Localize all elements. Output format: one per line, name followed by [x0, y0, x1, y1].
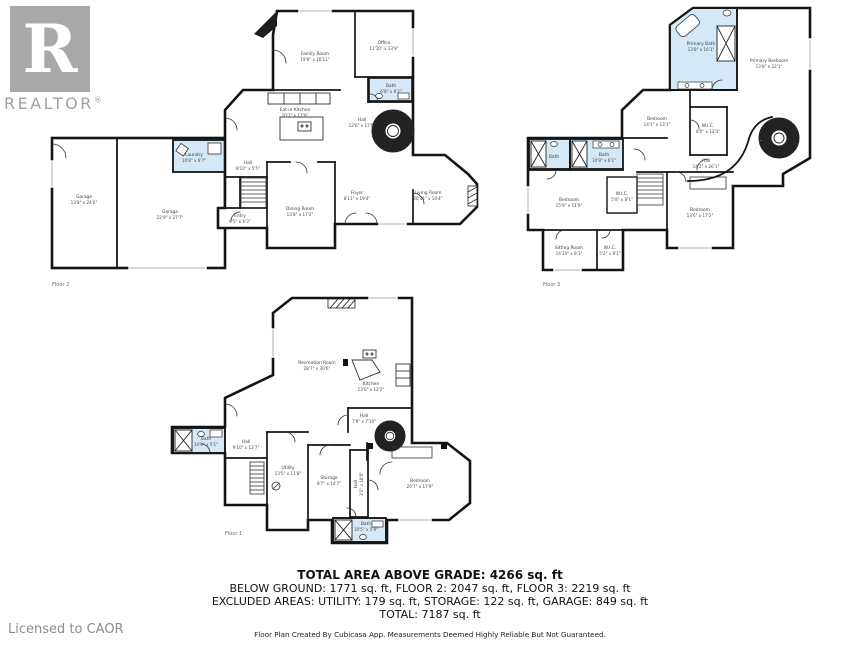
room-dims: 8'0" x 13'4" — [696, 129, 720, 134]
wall-post — [441, 443, 447, 449]
room-dims: 9'10" x 12'7" — [233, 445, 260, 450]
room-dims: 19'6" x 16'11" — [300, 57, 329, 62]
room-dims: 14'2" x 26'1" — [693, 164, 720, 169]
room-dims: 5'2" x 8'1" — [599, 251, 621, 256]
room-label: Bath — [549, 154, 559, 160]
room-dims: 13'5" x 11'8" — [275, 471, 302, 476]
room-dims: 14'10" x 8'1" — [556, 251, 583, 256]
room-dims: 20'7" x 17'9" — [407, 484, 434, 489]
washer-icon — [208, 143, 221, 154]
floor1-plan: Recreation Room 28'7" x 30'6" Kitchen 13… — [172, 298, 470, 543]
toilet-icon — [198, 431, 205, 436]
room-dims: 28'7" x 30'6" — [304, 366, 331, 371]
floor3-label: Floor 3 — [543, 282, 560, 288]
room-dims: 22'9" x 27'7" — [157, 215, 184, 220]
room-dims: 20'11" x 14'4" — [413, 196, 442, 201]
floorplan-document: R REALTOR® — [0, 0, 853, 646]
vanity-icon — [593, 141, 619, 148]
area-summary: TOTAL AREA ABOVE GRADE: 4266 sq. ft BELO… — [150, 568, 710, 639]
wall-post — [367, 443, 373, 449]
floor1-outline — [172, 298, 470, 543]
room-dims: 15'9" x 11'9" — [556, 203, 583, 208]
room-dims: 10'8" x 6'7" — [182, 158, 206, 163]
room-dims: 12'6" x 17'6" — [349, 123, 376, 128]
floorplans-canvas: Garage 13'8" x 24'6" Garage 22'9" x 27'7… — [0, 0, 853, 646]
floor1-label: Floor 1 — [225, 531, 242, 537]
room-dims: 8'7" x 14'7" — [317, 481, 341, 486]
room-dims: 14'1" x 13'1" — [644, 122, 671, 127]
room-dims: 10'9" x 6'1" — [592, 158, 616, 163]
room-dims: 3'1" x 10'0" — [359, 472, 364, 496]
room-dims: 6'8" x 8'2" — [380, 89, 402, 94]
bay-window-icon — [468, 186, 477, 206]
summary-title: TOTAL AREA ABOVE GRADE: 4266 sq. ft — [150, 568, 710, 582]
room-dims: 5'8" x 8'1" — [611, 197, 633, 202]
column — [343, 359, 348, 366]
floor2-outline — [218, 11, 477, 248]
shower-icon — [717, 26, 735, 61]
spiral-stairs-icon — [372, 110, 414, 152]
room-dims: 10'5" x 5'9" — [354, 527, 378, 532]
floor2-label: Floor 2 — [52, 282, 69, 288]
room-dims: 11'10" x 13'9" — [369, 46, 398, 51]
spiral-stairs-icon — [375, 421, 405, 451]
vanity-icon — [678, 82, 712, 89]
room-dims: 7'9" x 7'10" — [352, 419, 376, 424]
room-dims: 13'8" x 24'6" — [71, 200, 98, 205]
summary-disclaimer: Floor Plan Created By Cubicasa App. Meas… — [150, 630, 710, 639]
floor2-plan: Garage 13'8" x 24'6" Garage 22'9" x 27'7… — [52, 11, 477, 288]
room-dims: 10'8" x 5'1" — [194, 442, 218, 447]
room-dims: 13'0" x 12'2" — [358, 387, 385, 392]
license-text: Licensed to CAOR — [8, 622, 124, 637]
summary-line-excluded: EXCLUDED AREAS: UTILITY: 179 sq. ft, STO… — [150, 595, 710, 608]
room-dims: 13'8" x 16'1" — [688, 47, 715, 52]
window-well-icon — [328, 299, 355, 308]
room-dims: 8'10" x 5'5" — [236, 166, 260, 171]
sink-icon — [210, 430, 222, 437]
summary-line-floors: BELOW GROUND: 1771 sq. ft, FLOOR 2: 2047… — [150, 582, 710, 595]
room-dims: 8'11" x 19'4" — [344, 196, 371, 201]
room-dims: 13'8" x 17'2" — [287, 212, 314, 217]
toilet-icon — [551, 141, 558, 146]
room-dims: 6'5" x 6'3" — [229, 219, 251, 224]
spiral-stairs-icon — [759, 118, 799, 158]
toilet-icon — [360, 534, 367, 539]
room-dims: 20'1" x 17'9" — [282, 113, 309, 118]
toilet-icon — [723, 10, 731, 16]
room-dims: 13'6" x 17'2" — [687, 213, 714, 218]
floor3-plan: Primary Bath 13'8" x 16'1" Primary Bedro… — [528, 8, 810, 288]
room-dims: 13'8" x 22'1" — [756, 64, 783, 69]
summary-line-total: TOTAL: 7187 sq. ft — [150, 608, 710, 621]
shower-icon — [335, 520, 352, 540]
shower-icon — [175, 430, 192, 451]
